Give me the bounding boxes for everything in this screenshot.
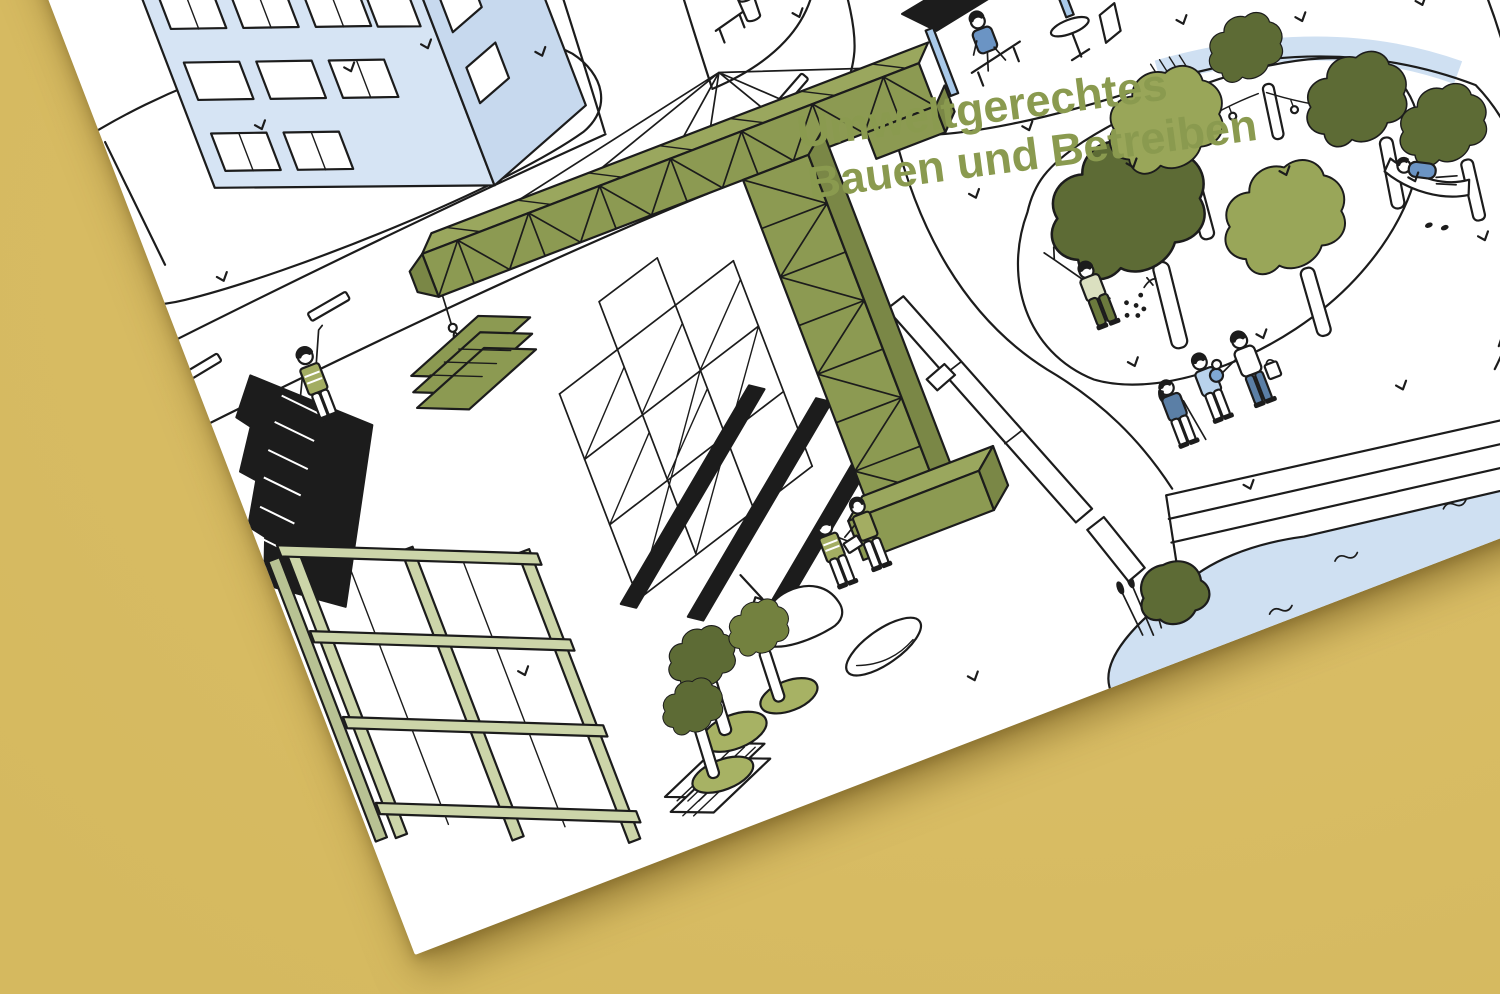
water — [1081, 306, 1500, 744]
parent-with-baby — [1188, 347, 1240, 424]
family-walking — [1148, 322, 1294, 449]
excavation-pit — [830, 604, 937, 688]
photo-backdrop: Umweltgerechtes Bauen und Betreiben — [0, 0, 1500, 994]
cafe-table — [1049, 13, 1100, 64]
poster-sheet: Umweltgerechtes Bauen und Betreiben — [0, 0, 1500, 955]
crane-hook-load — [383, 269, 553, 427]
a-frame-sign — [1094, 3, 1127, 43]
poster-illustration: Umweltgerechtes Bauen und Betreiben — [0, 0, 1500, 955]
seated-person — [959, 8, 1007, 74]
berries — [1119, 292, 1150, 322]
